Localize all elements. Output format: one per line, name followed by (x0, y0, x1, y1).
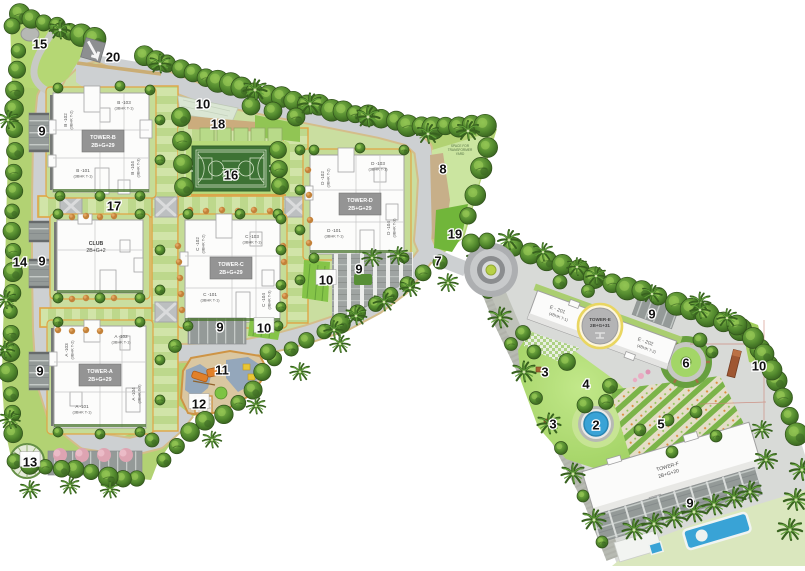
svg-text:2: 2 (592, 418, 599, 433)
svg-text:19: 19 (448, 227, 462, 242)
svg-text:10: 10 (319, 273, 333, 288)
svg-text:7: 7 (434, 254, 441, 269)
svg-text:9: 9 (648, 307, 655, 322)
svg-text:16: 16 (224, 168, 238, 183)
svg-text:9: 9 (216, 320, 223, 335)
svg-text:8: 8 (439, 162, 446, 177)
svg-text:10: 10 (196, 97, 210, 112)
svg-text:15: 15 (33, 37, 47, 52)
svg-text:9: 9 (355, 262, 362, 277)
svg-text:18: 18 (211, 117, 225, 132)
svg-text:14: 14 (13, 255, 28, 270)
svg-text:12: 12 (192, 397, 206, 412)
svg-text:3: 3 (541, 365, 548, 380)
svg-text:20: 20 (106, 50, 120, 65)
svg-text:11: 11 (215, 363, 229, 378)
svg-text:10: 10 (257, 321, 271, 336)
svg-text:9: 9 (38, 124, 45, 139)
svg-text:17: 17 (107, 199, 121, 214)
svg-text:9: 9 (686, 496, 693, 511)
svg-text:9: 9 (38, 254, 45, 269)
svg-text:5: 5 (657, 417, 664, 432)
svg-text:4: 4 (582, 377, 590, 392)
svg-text:10: 10 (752, 359, 766, 374)
svg-text:13: 13 (23, 455, 37, 470)
svg-text:3: 3 (549, 417, 556, 432)
svg-text:6: 6 (682, 356, 689, 371)
svg-text:9: 9 (36, 364, 43, 379)
